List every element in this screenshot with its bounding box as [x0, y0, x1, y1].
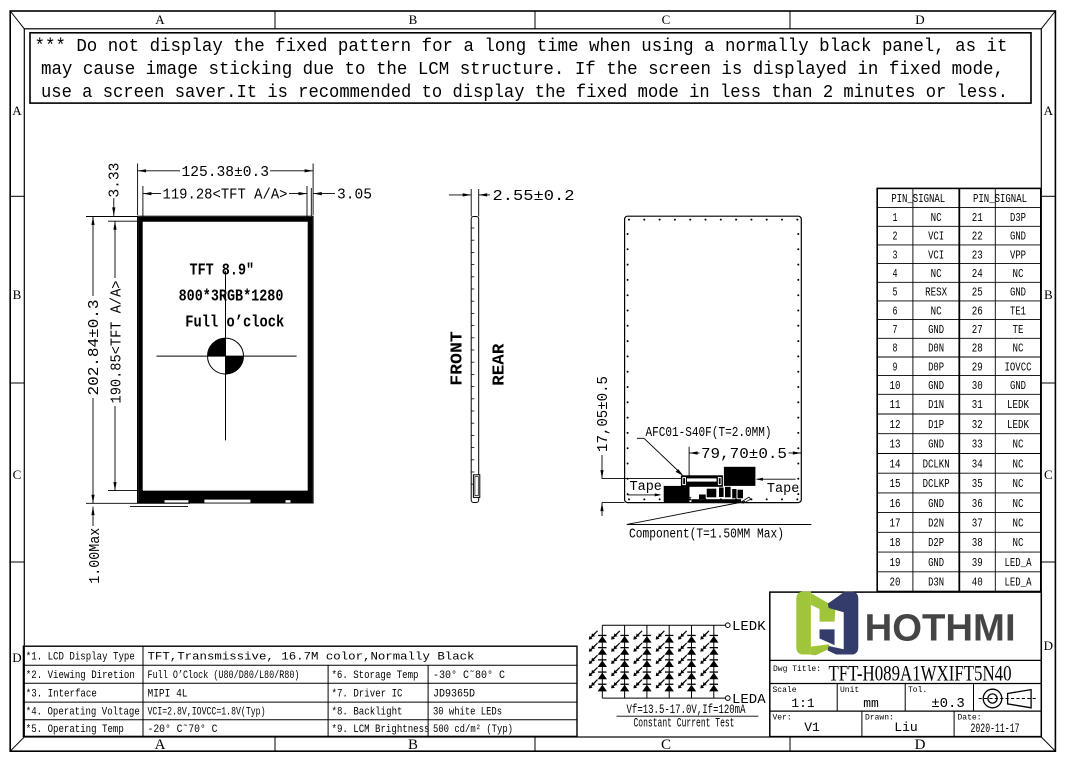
svg-text:GND: GND — [928, 439, 944, 452]
svg-text:24: 24 — [972, 268, 983, 281]
svg-text:*1. LCD Display Type: *1. LCD Display Type — [26, 652, 135, 664]
svg-text:30 white LEDs: 30 white LEDs — [433, 707, 502, 719]
svg-text:AFC01-S40F(T=2.0MM): AFC01-S40F(T=2.0MM) — [646, 426, 772, 441]
svg-text:5: 5 — [893, 287, 898, 300]
svg-text:NC: NC — [1013, 537, 1024, 550]
svg-text:A: A — [155, 12, 165, 27]
svg-text:32: 32 — [972, 419, 983, 432]
svg-text:C: C — [1044, 467, 1053, 482]
svg-text:15: 15 — [890, 478, 901, 491]
svg-text:800*3RGB*1280: 800*3RGB*1280 — [179, 287, 284, 306]
svg-text:NC: NC — [931, 268, 942, 281]
svg-text:RESX: RESX — [925, 287, 947, 300]
svg-text:8: 8 — [893, 343, 898, 356]
svg-text:B: B — [13, 287, 22, 302]
svg-text:Tape: Tape — [767, 482, 799, 497]
svg-text:may cause image sticking due t: may cause image sticking due to the LCM … — [41, 60, 1004, 80]
svg-text:NC: NC — [1013, 458, 1024, 471]
svg-text:VCI=2.8V,IOVCC=1.8V(Typ): VCI=2.8V,IOVCC=1.8V(Typ) — [148, 707, 266, 719]
svg-text:GND: GND — [928, 380, 944, 393]
svg-text:119.28<TFT A/A>: 119.28<TFT A/A> — [163, 188, 288, 204]
svg-text:LEDK: LEDK — [1007, 399, 1029, 412]
svg-text:use a screen saver.It is recom: use a screen saver.It is recommended to … — [41, 83, 1008, 103]
svg-text:Drawn:: Drawn: — [865, 714, 894, 723]
svg-text:202.84±0.3: 202.84±0.3 — [87, 300, 103, 396]
svg-text:GND: GND — [928, 324, 944, 337]
svg-text:12: 12 — [890, 419, 901, 432]
svg-text:D: D — [12, 650, 21, 665]
svg-text:C: C — [13, 467, 22, 482]
svg-text:NC: NC — [1013, 518, 1024, 531]
svg-text:VCI: VCI — [928, 231, 944, 244]
svg-text:DCLKP: DCLKP — [923, 478, 950, 491]
svg-text:VCI: VCI — [928, 249, 944, 262]
svg-text:Liu: Liu — [894, 720, 917, 735]
svg-text:TFT-H089A1WXIFT5N40: TFT-H089A1WXIFT5N40 — [829, 661, 1012, 686]
svg-text:Component(T=1.50MM Max): Component(T=1.50MM Max) — [629, 527, 784, 543]
svg-text:4: 4 — [893, 268, 898, 281]
svg-text:Scale: Scale — [773, 686, 797, 695]
svg-text:mm: mm — [863, 696, 879, 711]
svg-text:39: 39 — [972, 557, 983, 570]
svg-text:16: 16 — [890, 498, 901, 511]
svg-text:REAR: REAR — [491, 343, 510, 386]
svg-text:GND: GND — [1010, 231, 1026, 244]
svg-text:D0P: D0P — [928, 361, 944, 374]
svg-text:14: 14 — [890, 458, 901, 471]
svg-text:TE: TE — [1013, 324, 1024, 337]
svg-text:10: 10 — [890, 380, 901, 393]
svg-text:500 cd/m² (Typ): 500 cd/m² (Typ) — [433, 724, 513, 736]
svg-text:NC: NC — [931, 212, 942, 225]
svg-text:B: B — [408, 737, 418, 753]
svg-text:D: D — [915, 12, 924, 27]
svg-text:Full O’Clock (U80/D80/L80/R80): Full O’Clock (U80/D80/L80/R80) — [148, 670, 300, 682]
svg-text:79,70±0.5: 79,70±0.5 — [701, 447, 787, 463]
svg-text:*4. Operating Voltage: *4. Operating Voltage — [26, 707, 140, 719]
svg-text:36: 36 — [972, 498, 983, 511]
svg-text:GND: GND — [1010, 380, 1026, 393]
svg-text:7: 7 — [893, 324, 898, 337]
svg-text:Tol.: Tol. — [908, 686, 927, 695]
svg-text:*7. Driver IC: *7. Driver IC — [332, 689, 403, 701]
svg-text:GND: GND — [1010, 287, 1026, 300]
svg-text:2: 2 — [893, 231, 898, 244]
svg-text:1: 1 — [893, 212, 898, 225]
svg-text:FRONT: FRONT — [449, 331, 468, 386]
svg-text:D1N: D1N — [928, 399, 944, 412]
svg-text:Vf=13.5-17.0V,If=120mA: Vf=13.5-17.0V,If=120mA — [627, 703, 746, 717]
svg-text:A: A — [12, 103, 22, 118]
svg-text:Dwg Title:: Dwg Title: — [773, 665, 821, 674]
svg-text:3: 3 — [893, 249, 898, 262]
svg-text:PIN_SIGNAL: PIN_SIGNAL — [891, 193, 945, 206]
svg-text:NC: NC — [931, 305, 942, 318]
svg-text:*9. LCM Brightness: *9. LCM Brightness — [332, 724, 430, 736]
svg-text:13: 13 — [890, 439, 901, 452]
svg-text:6: 6 — [893, 305, 898, 318]
svg-text:JD9365D: JD9365D — [433, 689, 475, 701]
svg-text:-30° C˜80° C: -30° C˜80° C — [433, 670, 505, 682]
svg-text:125.38±0.3: 125.38±0.3 — [182, 165, 270, 181]
svg-text:1.00Max: 1.00Max — [88, 527, 104, 583]
svg-text:38: 38 — [972, 537, 983, 550]
svg-text:17: 17 — [890, 518, 901, 531]
svg-text:30: 30 — [972, 380, 983, 393]
svg-text:C: C — [662, 12, 671, 27]
svg-text:GND: GND — [928, 557, 944, 570]
svg-text:20: 20 — [890, 577, 901, 590]
svg-text:D: D — [1044, 638, 1053, 653]
svg-text:LED_A: LED_A — [1005, 577, 1032, 590]
svg-text:*8. Backlight: *8. Backlight — [332, 707, 403, 719]
svg-text:D3N: D3N — [928, 577, 944, 590]
svg-text:A: A — [155, 737, 166, 753]
svg-text:MIPI 4L: MIPI 4L — [148, 689, 188, 701]
svg-text:18: 18 — [890, 537, 901, 550]
svg-text:3.05: 3.05 — [337, 188, 372, 204]
svg-text:Ver:: Ver: — [773, 714, 792, 723]
svg-text:23: 23 — [972, 249, 983, 262]
svg-text:37: 37 — [972, 518, 983, 531]
svg-text:-20° C˜70° C: -20° C˜70° C — [148, 724, 218, 736]
svg-text:NC: NC — [1013, 343, 1024, 356]
svg-text:TE1: TE1 — [1010, 305, 1026, 318]
svg-text:1:1: 1:1 — [791, 696, 815, 711]
svg-text:LEDK: LEDK — [732, 619, 766, 635]
svg-text:NC: NC — [1013, 439, 1024, 452]
svg-text:19: 19 — [890, 557, 901, 570]
svg-text:*** Do not display the fixed p: *** Do not display the fixed pattern for… — [35, 37, 1008, 57]
svg-text:2.55±0.2: 2.55±0.2 — [493, 189, 575, 205]
svg-text:DCLKN: DCLKN — [923, 458, 950, 471]
svg-text:9: 9 — [893, 361, 898, 374]
svg-text:LED_A: LED_A — [1005, 557, 1032, 570]
svg-text:IOVCC: IOVCC — [1005, 361, 1032, 374]
svg-text:C: C — [661, 737, 671, 753]
svg-text:Constant Current Test: Constant Current Test — [634, 717, 735, 731]
svg-text:HOTHMI: HOTHMI — [865, 608, 1016, 650]
svg-text:33: 33 — [972, 439, 983, 452]
svg-text:D2P: D2P — [928, 537, 944, 550]
svg-text:25: 25 — [972, 287, 983, 300]
svg-text:TFT 8.9″: TFT 8.9″ — [190, 261, 255, 280]
svg-text:TFT,Transmissive, 16.7M color,: TFT,Transmissive, 16.7M color,Normally B… — [148, 652, 475, 664]
svg-text:22: 22 — [972, 231, 983, 244]
svg-text:NC: NC — [1013, 478, 1024, 491]
svg-text:Full o’clock: Full o’clock — [185, 313, 284, 332]
svg-text:NC: NC — [1013, 498, 1024, 511]
svg-text:17,05±0.5: 17,05±0.5 — [596, 376, 612, 452]
svg-text:2020-11-17: 2020-11-17 — [971, 722, 1020, 736]
svg-text:V1: V1 — [804, 720, 820, 735]
svg-text:*6. Storage Temp: *6. Storage Temp — [332, 670, 419, 682]
svg-text:Tape: Tape — [630, 480, 662, 495]
svg-text:D2N: D2N — [928, 518, 944, 531]
svg-text:21: 21 — [972, 212, 983, 225]
svg-text:29: 29 — [972, 361, 983, 374]
svg-text:*5. Operating Temp: *5. Operating Temp — [26, 724, 124, 736]
svg-text:26: 26 — [972, 305, 983, 318]
svg-text:*3. Interface: *3. Interface — [26, 689, 97, 701]
svg-text:D3P: D3P — [1010, 212, 1026, 225]
svg-text:35: 35 — [972, 478, 983, 491]
svg-text:*2. Viewing Diretion: *2. Viewing Diretion — [26, 670, 135, 682]
svg-text:GND: GND — [928, 498, 944, 511]
svg-text:190.85<TFT A/A>: 190.85<TFT A/A> — [110, 281, 126, 404]
svg-text:VPP: VPP — [1010, 249, 1026, 262]
svg-text:B: B — [409, 12, 418, 27]
svg-text:±0.3: ±0.3 — [931, 696, 965, 712]
svg-text:3.33: 3.33 — [108, 163, 124, 198]
svg-text:27: 27 — [972, 324, 983, 337]
svg-text:D1P: D1P — [928, 419, 944, 432]
svg-text:D: D — [915, 737, 926, 753]
svg-text:31: 31 — [972, 399, 983, 412]
svg-text:B: B — [1044, 287, 1053, 302]
svg-text:11: 11 — [890, 399, 901, 412]
svg-text:PIN_SIGNAL: PIN_SIGNAL — [973, 193, 1027, 206]
svg-text:34: 34 — [972, 458, 983, 471]
svg-text:40: 40 — [972, 577, 983, 590]
svg-text:28: 28 — [972, 343, 983, 356]
svg-text:D0N: D0N — [928, 343, 944, 356]
svg-text:A: A — [1044, 103, 1054, 118]
svg-text:NC: NC — [1013, 268, 1024, 281]
svg-text:LEDK: LEDK — [1007, 419, 1029, 432]
svg-text:Unit: Unit — [840, 686, 859, 695]
